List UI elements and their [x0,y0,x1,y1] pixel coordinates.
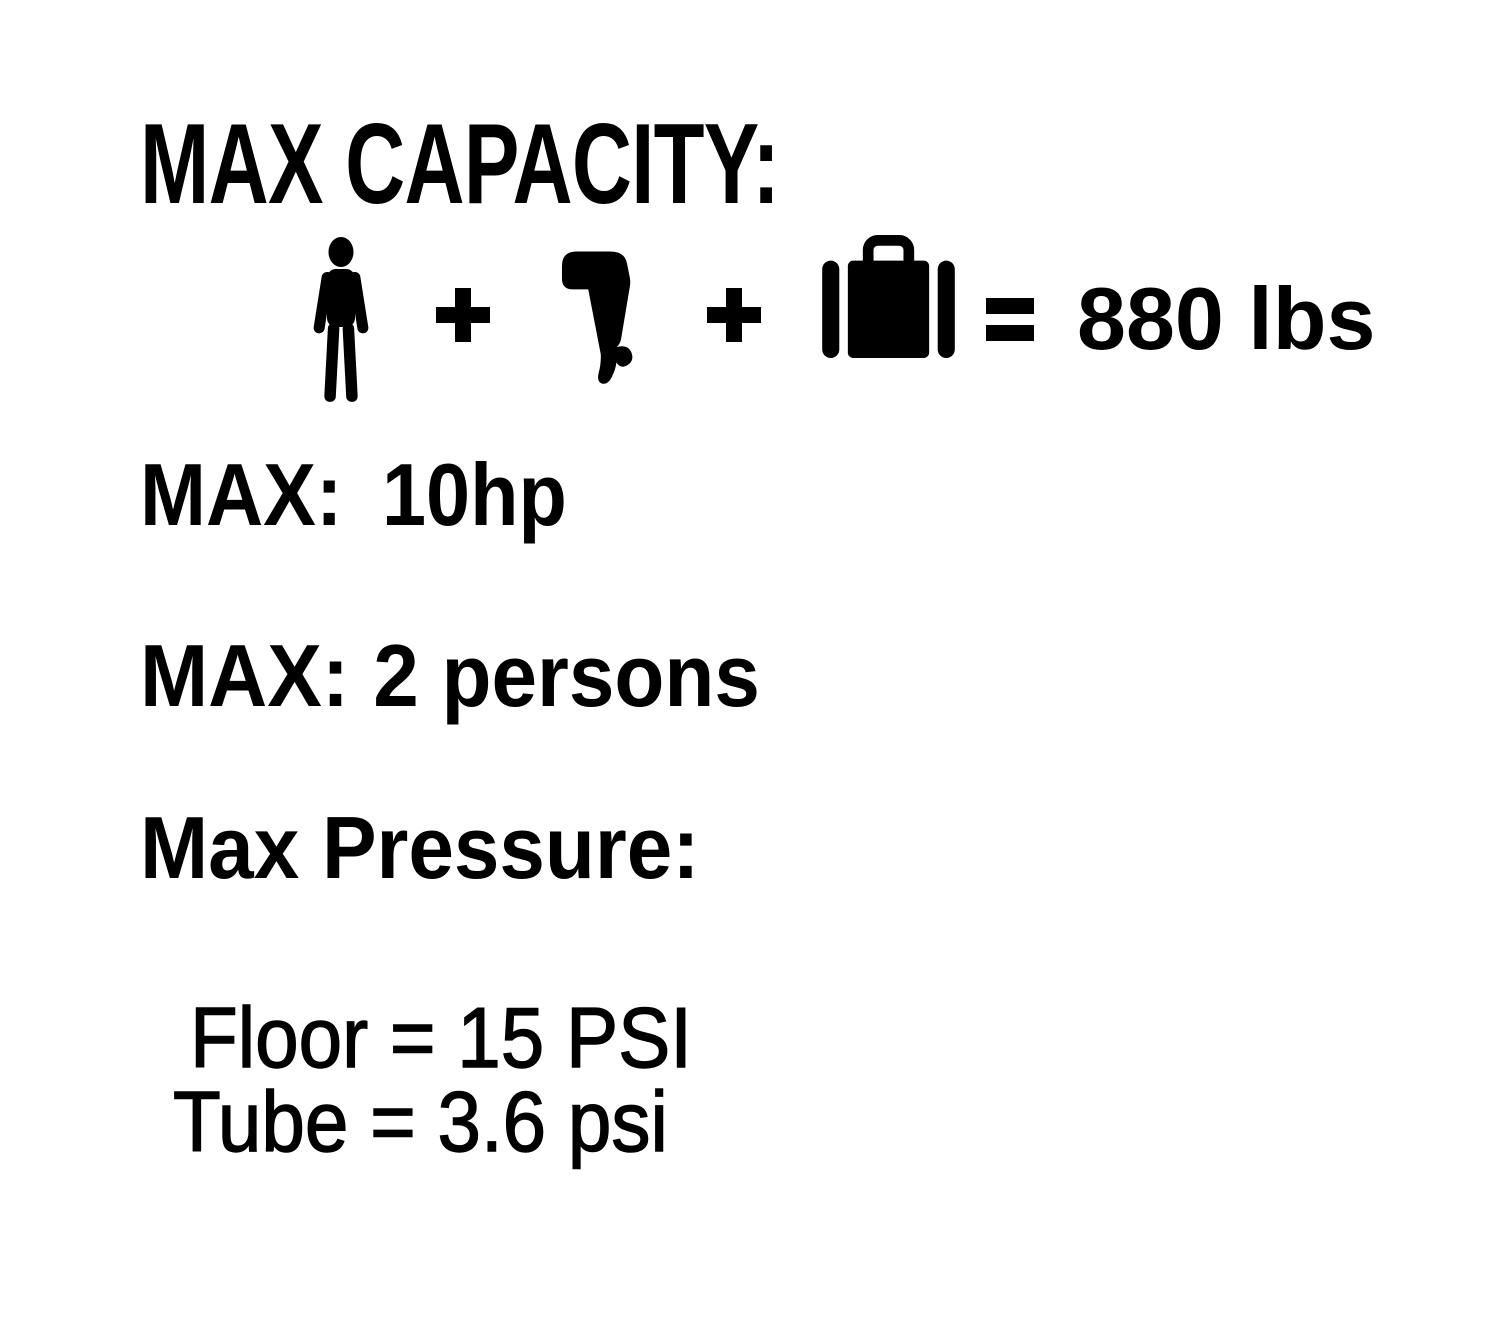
plus-icon [436,288,490,342]
capacity-equation: 880 lbs [305,233,1375,408]
pressure-floor-line: Floor = 15 PSI [190,996,692,1081]
max-persons-line: MAX:2 persons [140,632,760,720]
total-weight: 880 lbs [1077,275,1375,363]
capacity-plate: MAX CAPACITY: [0,0,1500,1329]
max-capacity-title: MAX CAPACITY: [140,108,779,222]
pressure-tube-line: Tube = 3.6 psi [173,1080,668,1165]
max-persons-label: MAX: [140,626,349,725]
outboard-motor-icon [559,250,635,396]
equals-icon [986,298,1034,342]
luggage-icon [820,235,957,358]
plus-icon [707,288,761,342]
max-persons-value: 2 persons [373,626,760,725]
max-hp-line: MAX:10hp [140,451,567,539]
person-icon [305,237,377,408]
max-pressure-title: Max Pressure: [140,804,700,892]
max-hp-value: 10hp [382,445,567,544]
max-hp-label: MAX: [140,445,342,544]
